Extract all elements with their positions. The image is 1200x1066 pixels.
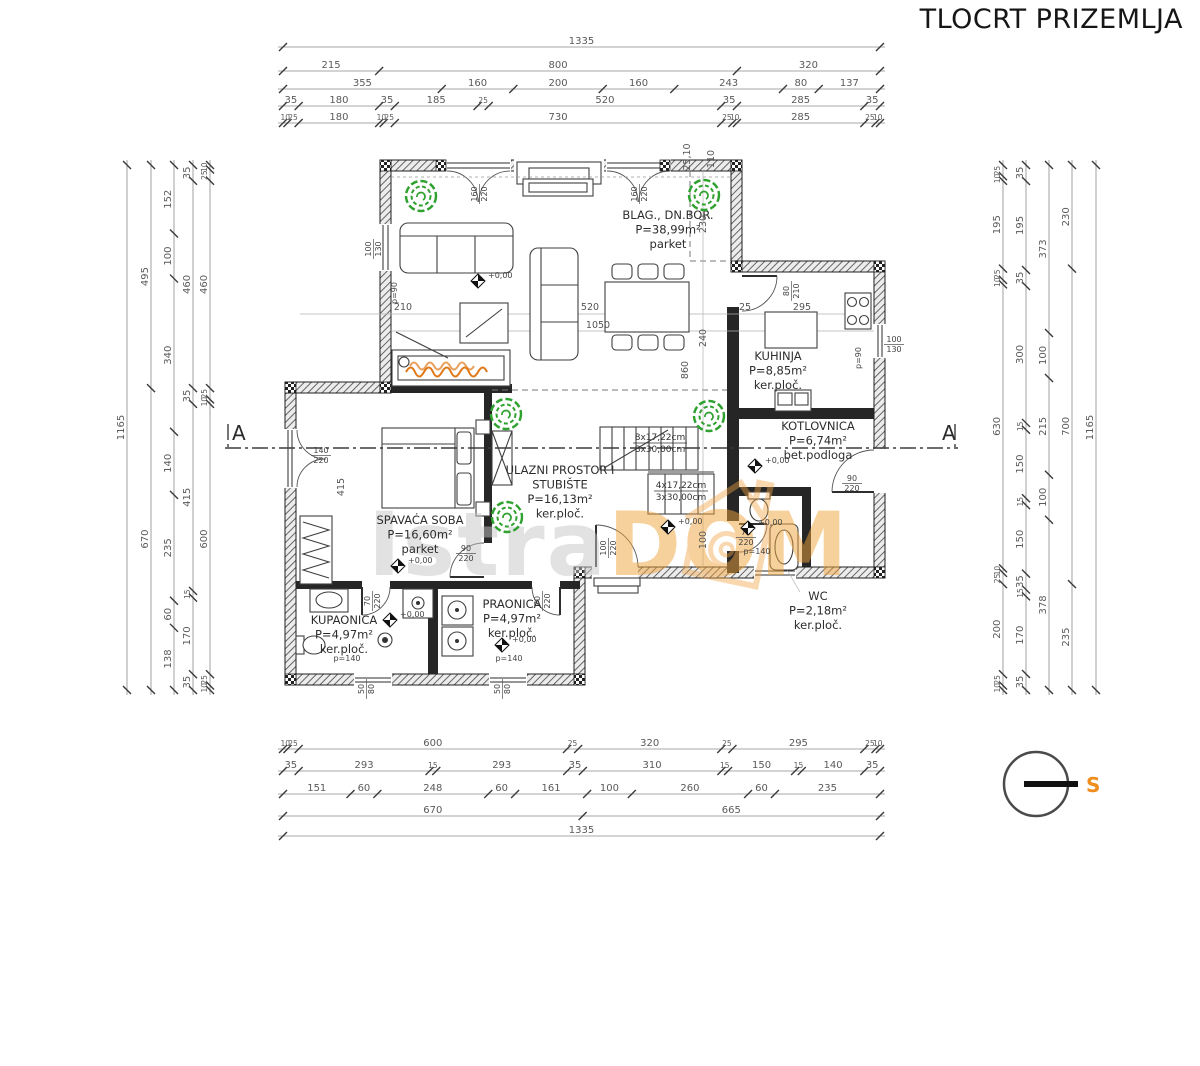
dimension-label: 293 xyxy=(492,760,511,771)
level-label: +0,00 xyxy=(400,610,425,619)
svg-text:50: 50 xyxy=(357,684,366,694)
dimension-label: 243 xyxy=(719,78,738,89)
dimension-label: 15 xyxy=(428,761,438,770)
dimension-label: 215 xyxy=(1038,417,1049,436)
svg-text:220: 220 xyxy=(543,593,552,608)
dimension-label: 180 xyxy=(329,95,348,106)
dimension-label: 600 xyxy=(199,529,210,548)
inner-dimension-label: 860 xyxy=(680,361,691,379)
dimension-label: 35 xyxy=(1015,272,1026,285)
inner-dimension-label: 25 xyxy=(739,302,751,313)
opening-label: 160220 xyxy=(630,184,649,204)
dimension-label: 1335 xyxy=(569,36,594,47)
svg-text:220: 220 xyxy=(844,484,859,493)
room-label-line: ker.ploč. xyxy=(754,378,802,392)
dimension-label: 665 xyxy=(722,805,741,816)
dimension-label: 35 xyxy=(182,167,193,180)
dimension-label: 140 xyxy=(163,454,174,473)
dimension-label: 10 xyxy=(200,397,209,407)
svg-text:70: 70 xyxy=(533,596,542,606)
level-label: +0,00 xyxy=(765,456,790,465)
room-label-boiler: KOTLOVNICAP=6,74m²bet.podloga xyxy=(781,419,855,462)
dimension-label: 600 xyxy=(423,738,442,749)
floor-plan-page: TLOCRT PRIZEMLJA xyxy=(0,0,1200,1066)
dimension-label: 460 xyxy=(182,275,193,294)
inner-dimension-label: 100 xyxy=(698,531,709,549)
dimension-label: 10 xyxy=(993,174,1002,184)
dimension-label: 35 xyxy=(182,676,193,689)
level-label: +0,00 xyxy=(488,271,513,280)
opening-label: p=140 xyxy=(333,654,360,663)
dimension-label: 25 xyxy=(722,739,732,748)
svg-text:130: 130 xyxy=(886,345,901,354)
section-label-right: A xyxy=(942,421,956,445)
dimension-label: 195 xyxy=(1015,216,1026,235)
level-label: +0,00 xyxy=(408,556,433,565)
dimension-label: 25 xyxy=(288,113,298,122)
dimension-label: 140 xyxy=(824,760,843,771)
inner-dimension-label: 240 xyxy=(698,329,709,347)
room-label-kitchen: KUHINJAP=8,85m²ker.ploč. xyxy=(749,349,807,392)
dimension-label: 15 xyxy=(1016,421,1025,431)
dimension-label: 670 xyxy=(423,805,442,816)
dimension-label: 415 xyxy=(182,488,193,507)
page-title: TLOCRT PRIZEMLJA xyxy=(919,4,1183,35)
dimension-label: 230 xyxy=(1061,207,1072,226)
opening-label: 140220 xyxy=(311,446,331,465)
dimension-label: 373 xyxy=(1038,239,1049,258)
dimension-label: 10 xyxy=(200,683,209,693)
svg-text:160: 160 xyxy=(630,186,639,201)
dimension-label: 100 xyxy=(1038,346,1049,365)
compass-letter: S xyxy=(1086,773,1100,797)
room-label-line: parket xyxy=(650,237,687,251)
dimension-label: 10 xyxy=(873,739,883,748)
dimension-label: 630 xyxy=(992,417,1003,436)
dimension-label: 161 xyxy=(542,783,561,794)
svg-text:100: 100 xyxy=(364,241,373,256)
svg-text:3x30,00cm: 3x30,00cm xyxy=(656,493,707,503)
tv-bench xyxy=(523,179,593,196)
dimension-label: 170 xyxy=(182,626,193,645)
floor-plan-canvas: TLOCRT PRIZEMLJA xyxy=(0,0,1200,1066)
inner-dimension-label: 230 xyxy=(698,215,709,233)
opening-label: p=90 xyxy=(854,347,863,369)
svg-text:130: 130 xyxy=(374,241,383,256)
dimension-label: 293 xyxy=(355,760,374,771)
room-label-line: P=38,99m² xyxy=(635,223,700,237)
svg-text:80: 80 xyxy=(367,684,376,694)
dimension-label: 670 xyxy=(140,529,151,548)
dimension-label: 10 xyxy=(993,683,1002,693)
dimension-label: 10 xyxy=(730,113,740,122)
opening-label: p=140 xyxy=(495,654,522,663)
dimension-label: 235 xyxy=(1061,628,1072,647)
dimension-label: 310 xyxy=(643,760,662,771)
svg-text:100: 100 xyxy=(599,540,608,555)
room-label-line: ULAZNI PROSTOR I xyxy=(506,463,615,477)
dimension-label: 152 xyxy=(163,190,174,209)
room-label-line: P=6,74m² xyxy=(789,434,847,448)
svg-text:210: 210 xyxy=(792,283,801,298)
opening-label: p=140 xyxy=(743,547,770,556)
dimension-label: 460 xyxy=(199,275,210,294)
dimension-label: 285 xyxy=(791,112,810,123)
dimension-label: 35 xyxy=(1015,575,1026,588)
dimension-label: 700 xyxy=(1061,417,1072,436)
dimension-label: 355 xyxy=(353,78,372,89)
dimension-label: 60 xyxy=(358,783,371,794)
svg-text:80: 80 xyxy=(782,286,791,296)
svg-text:80: 80 xyxy=(503,684,512,694)
svg-text:8x17,22cm: 8x17,22cm xyxy=(635,433,686,443)
dimension-label: 300 xyxy=(1015,345,1026,364)
level-label: +0,00 xyxy=(512,635,537,644)
svg-text:p=140: p=140 xyxy=(333,654,360,663)
dimension-label: 25 xyxy=(478,96,488,105)
dimension-label: 160 xyxy=(629,78,648,89)
svg-text:p=140: p=140 xyxy=(495,654,522,663)
inner-dimension-label: 295 xyxy=(793,302,811,313)
inner-dimension-label: 25,10 xyxy=(682,143,693,170)
dimension-label: 15 xyxy=(1016,497,1025,507)
svg-text:90: 90 xyxy=(461,544,471,553)
dimension-label: 25 xyxy=(568,739,578,748)
svg-text:220: 220 xyxy=(458,554,473,563)
dimension-label: 35 xyxy=(1015,676,1026,689)
svg-text:220: 220 xyxy=(480,186,489,201)
dimension-label: 215 xyxy=(322,60,341,71)
svg-text:220: 220 xyxy=(373,593,382,608)
room-label-line: KUPAONICA xyxy=(311,613,378,627)
dimension-label: 160 xyxy=(468,78,487,89)
dimension-label: 378 xyxy=(1038,595,1049,614)
dimension-label: 35 xyxy=(866,760,879,771)
dimension-label: 10 xyxy=(873,113,883,122)
dimension-label: 1165 xyxy=(1085,415,1096,440)
svg-text:4x17,22cm: 4x17,22cm xyxy=(656,481,707,491)
inner-dimension-label: 110 xyxy=(706,150,717,168)
dimension-label: 200 xyxy=(992,620,1003,639)
dimension-label: 235 xyxy=(818,783,837,794)
dimension-label: 185 xyxy=(427,95,446,106)
svg-text:220: 220 xyxy=(738,538,753,547)
dimension-label: 150 xyxy=(1015,530,1026,549)
dimension-label: 15 xyxy=(1016,588,1025,598)
dimension-label: 25 xyxy=(993,573,1002,583)
room-label-line: STUBIŠTE xyxy=(532,477,588,492)
svg-text:p=90: p=90 xyxy=(390,282,399,304)
dimension-label: 285 xyxy=(791,95,810,106)
chaise-sofa xyxy=(530,248,578,360)
room-label-line: P=16,13m² xyxy=(527,492,592,506)
svg-text:220: 220 xyxy=(640,186,649,201)
dimension-label: 150 xyxy=(752,760,771,771)
dimension-label: 195 xyxy=(992,215,1003,234)
dimension-label: 1165 xyxy=(116,415,127,440)
room-label-line: KOTLOVNICA xyxy=(781,419,855,433)
room-label-line: parket xyxy=(402,542,439,556)
svg-text:220: 220 xyxy=(609,540,618,555)
dimension-label: 235 xyxy=(163,538,174,557)
dimension-label: 35 xyxy=(723,95,736,106)
room-label-bathroom: KUPAONICAP=4,97m²ker.ploč. xyxy=(311,613,378,656)
dimension-label: 35 xyxy=(182,390,193,403)
room-label-line: P=16,60m² xyxy=(387,528,452,542)
dimension-label: 151 xyxy=(307,783,326,794)
inner-dimension-label: 415 xyxy=(336,478,347,496)
svg-text:90: 90 xyxy=(847,474,857,483)
svg-text:160: 160 xyxy=(470,186,479,201)
dimension-label: 60 xyxy=(163,608,174,621)
sofa xyxy=(400,223,513,273)
dimension-label: 180 xyxy=(329,112,348,123)
dimension-label: 35 xyxy=(866,95,879,106)
dimension-label: 25 xyxy=(384,113,394,122)
kitchen-island xyxy=(765,312,817,348)
room-label-line: SPAVAĆA SOBA xyxy=(376,512,463,527)
room-label-line: WC xyxy=(808,589,827,603)
dimension-label: 150 xyxy=(1015,454,1026,473)
dimension-label: 100 xyxy=(163,246,174,265)
dimension-label: 138 xyxy=(163,649,174,668)
svg-text:100: 100 xyxy=(886,335,901,344)
dimension-label: 730 xyxy=(548,112,567,123)
room-label-line: ker.ploč. xyxy=(536,507,584,521)
dimension-label: 35 xyxy=(284,95,297,106)
dimension-label: 320 xyxy=(799,60,818,71)
dimension-label: 35 xyxy=(1015,167,1026,180)
dimension-label: 60 xyxy=(495,783,508,794)
room-label-line: P=4,97m² xyxy=(315,628,373,642)
dimension-label: 100 xyxy=(600,783,619,794)
dimension-label: 200 xyxy=(548,78,567,89)
dimension-label: 1335 xyxy=(569,825,594,836)
room-label-line: ker.ploč. xyxy=(794,618,842,632)
dimension-label: 520 xyxy=(595,95,614,106)
dimension-label: 248 xyxy=(423,783,442,794)
dimension-label: 35 xyxy=(569,760,582,771)
room-label-line: bet.podloga xyxy=(784,448,853,462)
dimension-label: 15 xyxy=(183,589,192,599)
level-label: +0,00 xyxy=(758,518,783,527)
dimension-label: 35 xyxy=(284,760,297,771)
dimension-label: 100 xyxy=(1038,488,1049,507)
svg-text:220: 220 xyxy=(313,456,328,465)
dimension-label: 170 xyxy=(1015,626,1026,645)
svg-text:70: 70 xyxy=(363,596,372,606)
inner-dimension-label: 520 xyxy=(581,302,599,313)
svg-text:p=140: p=140 xyxy=(743,547,770,556)
opening-label: 100130 xyxy=(364,239,383,259)
dimension-label: 295 xyxy=(789,738,808,749)
dimension-label: 137 xyxy=(840,78,859,89)
dimension-label: 60 xyxy=(755,783,768,794)
opening-label: p=90 xyxy=(390,282,399,304)
dimension-label: 25 xyxy=(200,170,209,180)
inner-dimension-label: 1050 xyxy=(586,320,610,331)
dimension-label: 495 xyxy=(140,267,151,286)
room-label-line: P=2,18m² xyxy=(789,604,847,618)
svg-text:8x30,00cm: 8x30,00cm xyxy=(635,445,686,455)
dimension-label: 15 xyxy=(794,761,804,770)
svg-text:140: 140 xyxy=(313,446,328,455)
svg-text:p=90: p=90 xyxy=(854,347,863,369)
room-label-line: P=4,97m² xyxy=(483,612,541,626)
level-label: +0,00 xyxy=(678,517,703,526)
dimension-label: 35 xyxy=(381,95,394,106)
dimension-label: 340 xyxy=(163,346,174,365)
dimension-label: 15 xyxy=(720,761,730,770)
opening-label: 160220 xyxy=(470,184,489,204)
section-label-left: A xyxy=(232,421,246,445)
fixed-window xyxy=(514,158,604,172)
dimension-label: 25 xyxy=(288,739,298,748)
nightstand xyxy=(476,420,490,434)
dimension-label: 800 xyxy=(548,60,567,71)
dimension-label: 10 xyxy=(993,277,1002,287)
opening-label: 100220 xyxy=(599,538,618,558)
dimension-label: 260 xyxy=(680,783,699,794)
room-label-line: KUHINJA xyxy=(754,349,801,363)
opening-label: 100130 xyxy=(884,335,904,354)
svg-text:50: 50 xyxy=(493,684,502,694)
dining-table xyxy=(605,282,689,332)
dimension-label: 320 xyxy=(640,738,659,749)
dimension-label: 80 xyxy=(794,78,807,89)
room-label-line: P=8,85m² xyxy=(749,364,807,378)
